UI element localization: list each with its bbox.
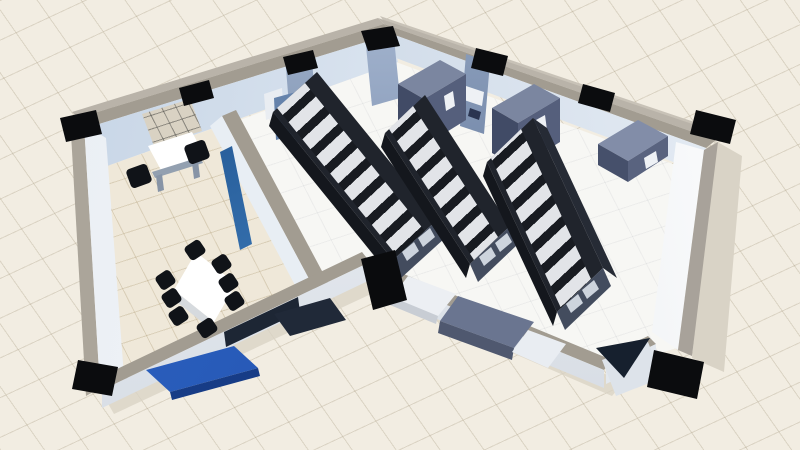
scene-viewport[interactable] <box>0 0 800 450</box>
